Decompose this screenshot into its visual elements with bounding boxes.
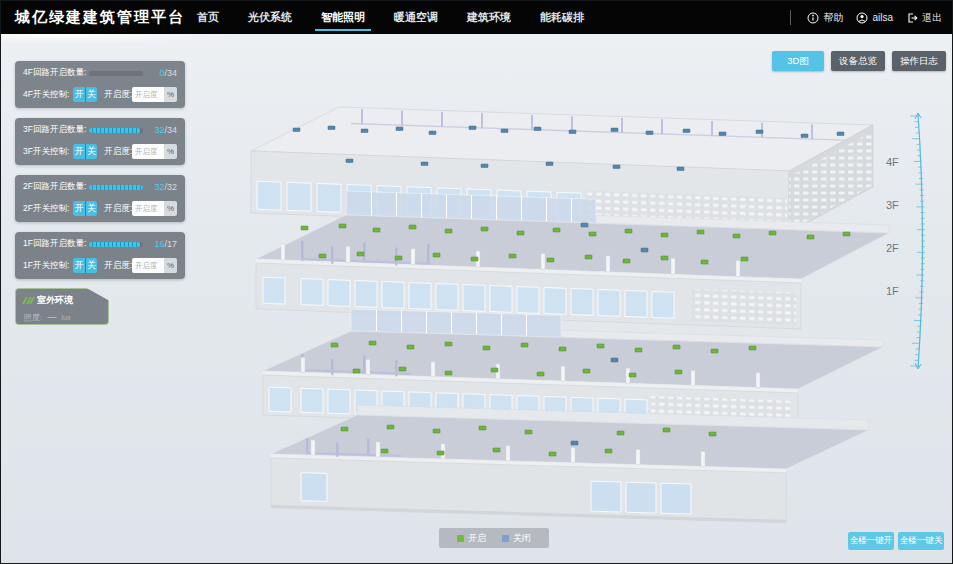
outdoor-env-panel: 室外环境 照度: — lux (15, 288, 109, 325)
openness-field: % (132, 87, 177, 102)
floor-panel-1f: 1F回路开启数量: 16/17 1F开关控制: 开 关 开启度: % (15, 232, 185, 279)
legend-on: 开启 (457, 532, 486, 545)
all-on-button[interactable]: 全楼一键开 (848, 532, 894, 550)
percent-suffix: % (164, 201, 177, 216)
circuit-count-value: 32/34 (154, 125, 177, 135)
light-markers-2f-off (611, 358, 618, 362)
percent-suffix: % (164, 87, 177, 102)
openness-field: % (132, 144, 177, 159)
openness-label: 开启度: (104, 260, 132, 272)
nav-energy-carbon[interactable]: 能耗碳排 (540, 1, 584, 34)
view-3d-button[interactable]: 3D图 (772, 51, 824, 71)
circuit-count-label: 4F回路开启数量: (23, 67, 86, 79)
user-avatar-icon (856, 12, 868, 24)
openness-input[interactable] (132, 201, 164, 216)
switch-on-button[interactable]: 开 (73, 258, 84, 273)
openness-input[interactable] (132, 144, 164, 159)
floor-panel-3f: 3F回路开启数量: 32/34 3F开关控制: 开 关 开启度: % (15, 118, 185, 165)
percent-suffix: % (164, 144, 177, 159)
header-divider (790, 10, 791, 25)
circuit-progress-bar (89, 128, 143, 133)
header-user-area: 帮助 ailsa 退出 (790, 1, 942, 34)
axis-label-3f: 3F (886, 199, 899, 211)
switch-off-button[interactable]: 关 (86, 144, 97, 159)
logout-icon (906, 12, 918, 24)
openness-label: 开启度: (104, 89, 132, 101)
switch-on-button[interactable]: 开 (73, 201, 84, 216)
switch-control-label: 3F开关控制: (23, 146, 69, 158)
circuit-progress-bar (89, 242, 143, 247)
floor-panel-2f: 2F回路开启数量: 32/32 2F开关控制: 开 关 开启度: % (15, 175, 185, 222)
switch-off-button[interactable]: 关 (86, 201, 97, 216)
circuit-count-value: 0/34 (159, 68, 177, 78)
help-icon (807, 12, 819, 24)
all-off-button[interactable]: 全楼一键关 (898, 532, 944, 550)
nav-smart-lighting[interactable]: 智能照明 (321, 1, 365, 34)
openness-input[interactable] (132, 87, 164, 102)
switch-control-label: 2F开关控制: (23, 203, 69, 215)
switch-off-button[interactable]: 关 (86, 258, 97, 273)
legend-off: 关闭 (502, 532, 531, 545)
floor-zoom-ruler[interactable] (910, 113, 925, 369)
switch-button-group: 开 关 (73, 87, 97, 102)
circuit-count-label: 1F回路开启数量: (23, 238, 86, 250)
openness-field: % (132, 258, 177, 273)
operation-log-button[interactable]: 操作日志 (892, 51, 946, 71)
openness-label: 开启度: (104, 203, 132, 215)
device-overview-button[interactable]: 设备总览 (831, 51, 885, 71)
switch-button-group: 开 关 (73, 144, 97, 159)
openness-field: % (132, 201, 177, 216)
main-nav: 首页 光伏系统 智能照明 暖通空调 建筑环境 能耗碳排 (197, 1, 584, 34)
circuit-count-value: 16/17 (154, 239, 177, 249)
nav-home[interactable]: 首页 (197, 1, 219, 34)
switch-button-group: 开 关 (73, 201, 97, 216)
floor-panel-4f: 4F回路开启数量: 0/34 4F开关控制: 开 关 开启度: % (15, 61, 185, 108)
switch-off-button[interactable]: 关 (86, 87, 97, 102)
percent-suffix: % (164, 258, 177, 273)
legend-on-swatch (457, 535, 464, 542)
outdoor-env-title: 室外环境 (37, 294, 73, 307)
outdoor-env-icon (24, 297, 33, 304)
whole-building-buttons: 全楼一键开 全楼一键关 (848, 532, 944, 550)
user-account[interactable]: ailsa (856, 12, 893, 24)
switch-on-button[interactable]: 开 (73, 144, 84, 159)
illuminance-value: — (47, 312, 56, 322)
circuit-progress-bar (89, 185, 143, 190)
floor-1f-model[interactable] (271, 405, 869, 523)
axis-label-2f: 2F (886, 242, 899, 254)
light-state-legend: 开启 关闭 (439, 528, 549, 548)
logout-link[interactable]: 退出 (906, 11, 942, 25)
top-header: 城亿绿建建筑管理平台 首页 光伏系统 智能照明 暖通空调 建筑环境 能耗碳排 帮… (1, 1, 952, 34)
circuit-count-label: 2F回路开启数量: (23, 181, 86, 193)
axis-label-1f: 1F (886, 285, 899, 297)
circuit-progress-bar (89, 71, 143, 76)
nav-hvac[interactable]: 暖通空调 (394, 1, 438, 34)
switch-button-group: 开 关 (73, 258, 97, 273)
switch-control-label: 4F开关控制: (23, 89, 69, 101)
illuminance-unit: lux (61, 313, 71, 322)
circuit-count-value: 32/32 (154, 182, 177, 192)
openness-label: 开启度: (104, 146, 132, 158)
circuit-count-label: 3F回路开启数量: (23, 124, 86, 136)
switch-control-label: 1F开关控制: (23, 260, 69, 272)
illuminance-label: 照度: (24, 312, 42, 323)
nav-building-env[interactable]: 建筑环境 (467, 1, 511, 34)
nav-pv-system[interactable]: 光伏系统 (248, 1, 292, 34)
help-link[interactable]: 帮助 (807, 11, 843, 25)
light-markers-1f-off (571, 441, 578, 445)
switch-on-button[interactable]: 开 (73, 87, 84, 102)
app-window: 城亿绿建建筑管理平台 首页 光伏系统 智能照明 暖通空调 建筑环境 能耗碳排 帮… (0, 0, 953, 564)
view-switch-buttons: 3D图 设备总览 操作日志 (772, 51, 946, 71)
legend-off-swatch (502, 535, 509, 542)
header-glow (1, 34, 241, 44)
openness-input[interactable] (132, 258, 164, 273)
axis-label-4f: 4F (886, 156, 899, 168)
app-title: 城亿绿建建筑管理平台 (15, 8, 185, 27)
